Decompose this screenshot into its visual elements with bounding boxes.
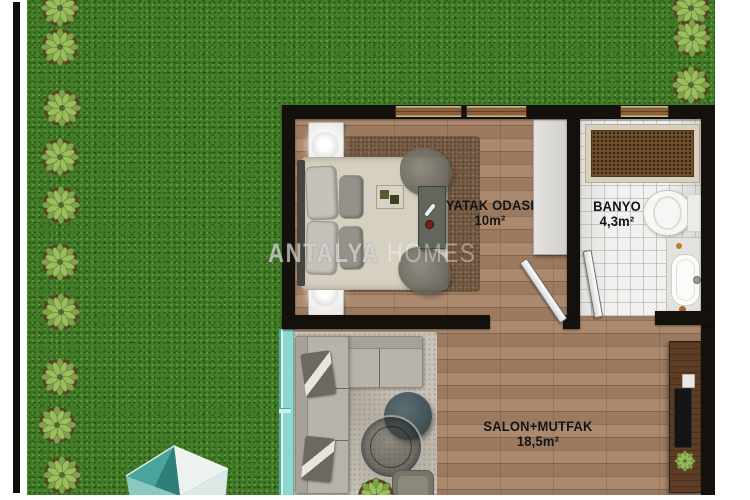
label-bedroom: YATAK ODASI 10m² xyxy=(428,198,553,228)
bed-tray xyxy=(376,185,404,209)
garden-plant-icon xyxy=(42,88,82,128)
window xyxy=(620,106,669,117)
garden-plant-icon xyxy=(41,185,81,225)
garden-plant-icon xyxy=(37,405,77,445)
faucet-icon xyxy=(693,276,701,284)
sofa-throw xyxy=(301,436,335,483)
garden-plant-icon xyxy=(40,0,80,28)
label-bathroom: BANYO 4,3m² xyxy=(573,199,661,229)
bedroom-area: 10m² xyxy=(428,213,553,228)
sofa-throw xyxy=(300,350,336,398)
wall-bathroom-bottom xyxy=(655,311,715,325)
watermark-secondary: HOMES xyxy=(387,238,476,268)
garden-plant-icon xyxy=(40,27,80,67)
bedroom-name: YATAK ODASI xyxy=(428,198,553,213)
page-edge-line xyxy=(13,2,20,493)
living-kitchen-name: SALON+MUTFAK xyxy=(458,419,617,434)
shower-mat-texture xyxy=(591,130,694,177)
page-margin-bottom xyxy=(0,495,750,500)
wall-bedroom-bottom xyxy=(282,315,490,329)
wall-right xyxy=(701,105,715,496)
floorplan-render: YATAK ODASI 10m² BANYO 4,3m² SALON+MUTFA… xyxy=(0,0,750,500)
garden-plant-icon xyxy=(672,18,712,58)
garden-plant-icon xyxy=(40,357,80,397)
garden-plant-icon xyxy=(40,242,80,282)
lamp-icon xyxy=(312,132,338,158)
watermark: ANTALYAHOMES xyxy=(268,238,476,269)
bathroom-name: BANYO xyxy=(573,199,661,214)
window xyxy=(395,106,462,117)
window xyxy=(466,106,527,117)
glass-door-divider xyxy=(279,408,291,413)
tv-screen xyxy=(674,388,692,448)
shower-mat xyxy=(585,124,700,183)
garden-plant-icon xyxy=(671,65,711,105)
pillow xyxy=(305,165,340,221)
page-margin-right xyxy=(715,0,750,500)
bath-accessory-icon xyxy=(676,243,682,249)
label-living-kitchen: SALON+MUTFAK 18,5m² xyxy=(458,419,617,449)
garden-plant-icon xyxy=(40,137,80,177)
bathroom-area: 4,3m² xyxy=(573,214,661,229)
pillow xyxy=(339,175,364,219)
wall-left xyxy=(282,105,295,329)
living-kitchen-area: 18,5m² xyxy=(458,434,617,449)
media-box xyxy=(682,374,695,388)
potted-plant-icon xyxy=(674,450,696,472)
garden-plant-icon xyxy=(41,292,81,332)
garden-plant-icon xyxy=(42,455,82,495)
garden-structure xyxy=(118,444,232,500)
watermark-primary: ANTALYA xyxy=(268,238,380,268)
